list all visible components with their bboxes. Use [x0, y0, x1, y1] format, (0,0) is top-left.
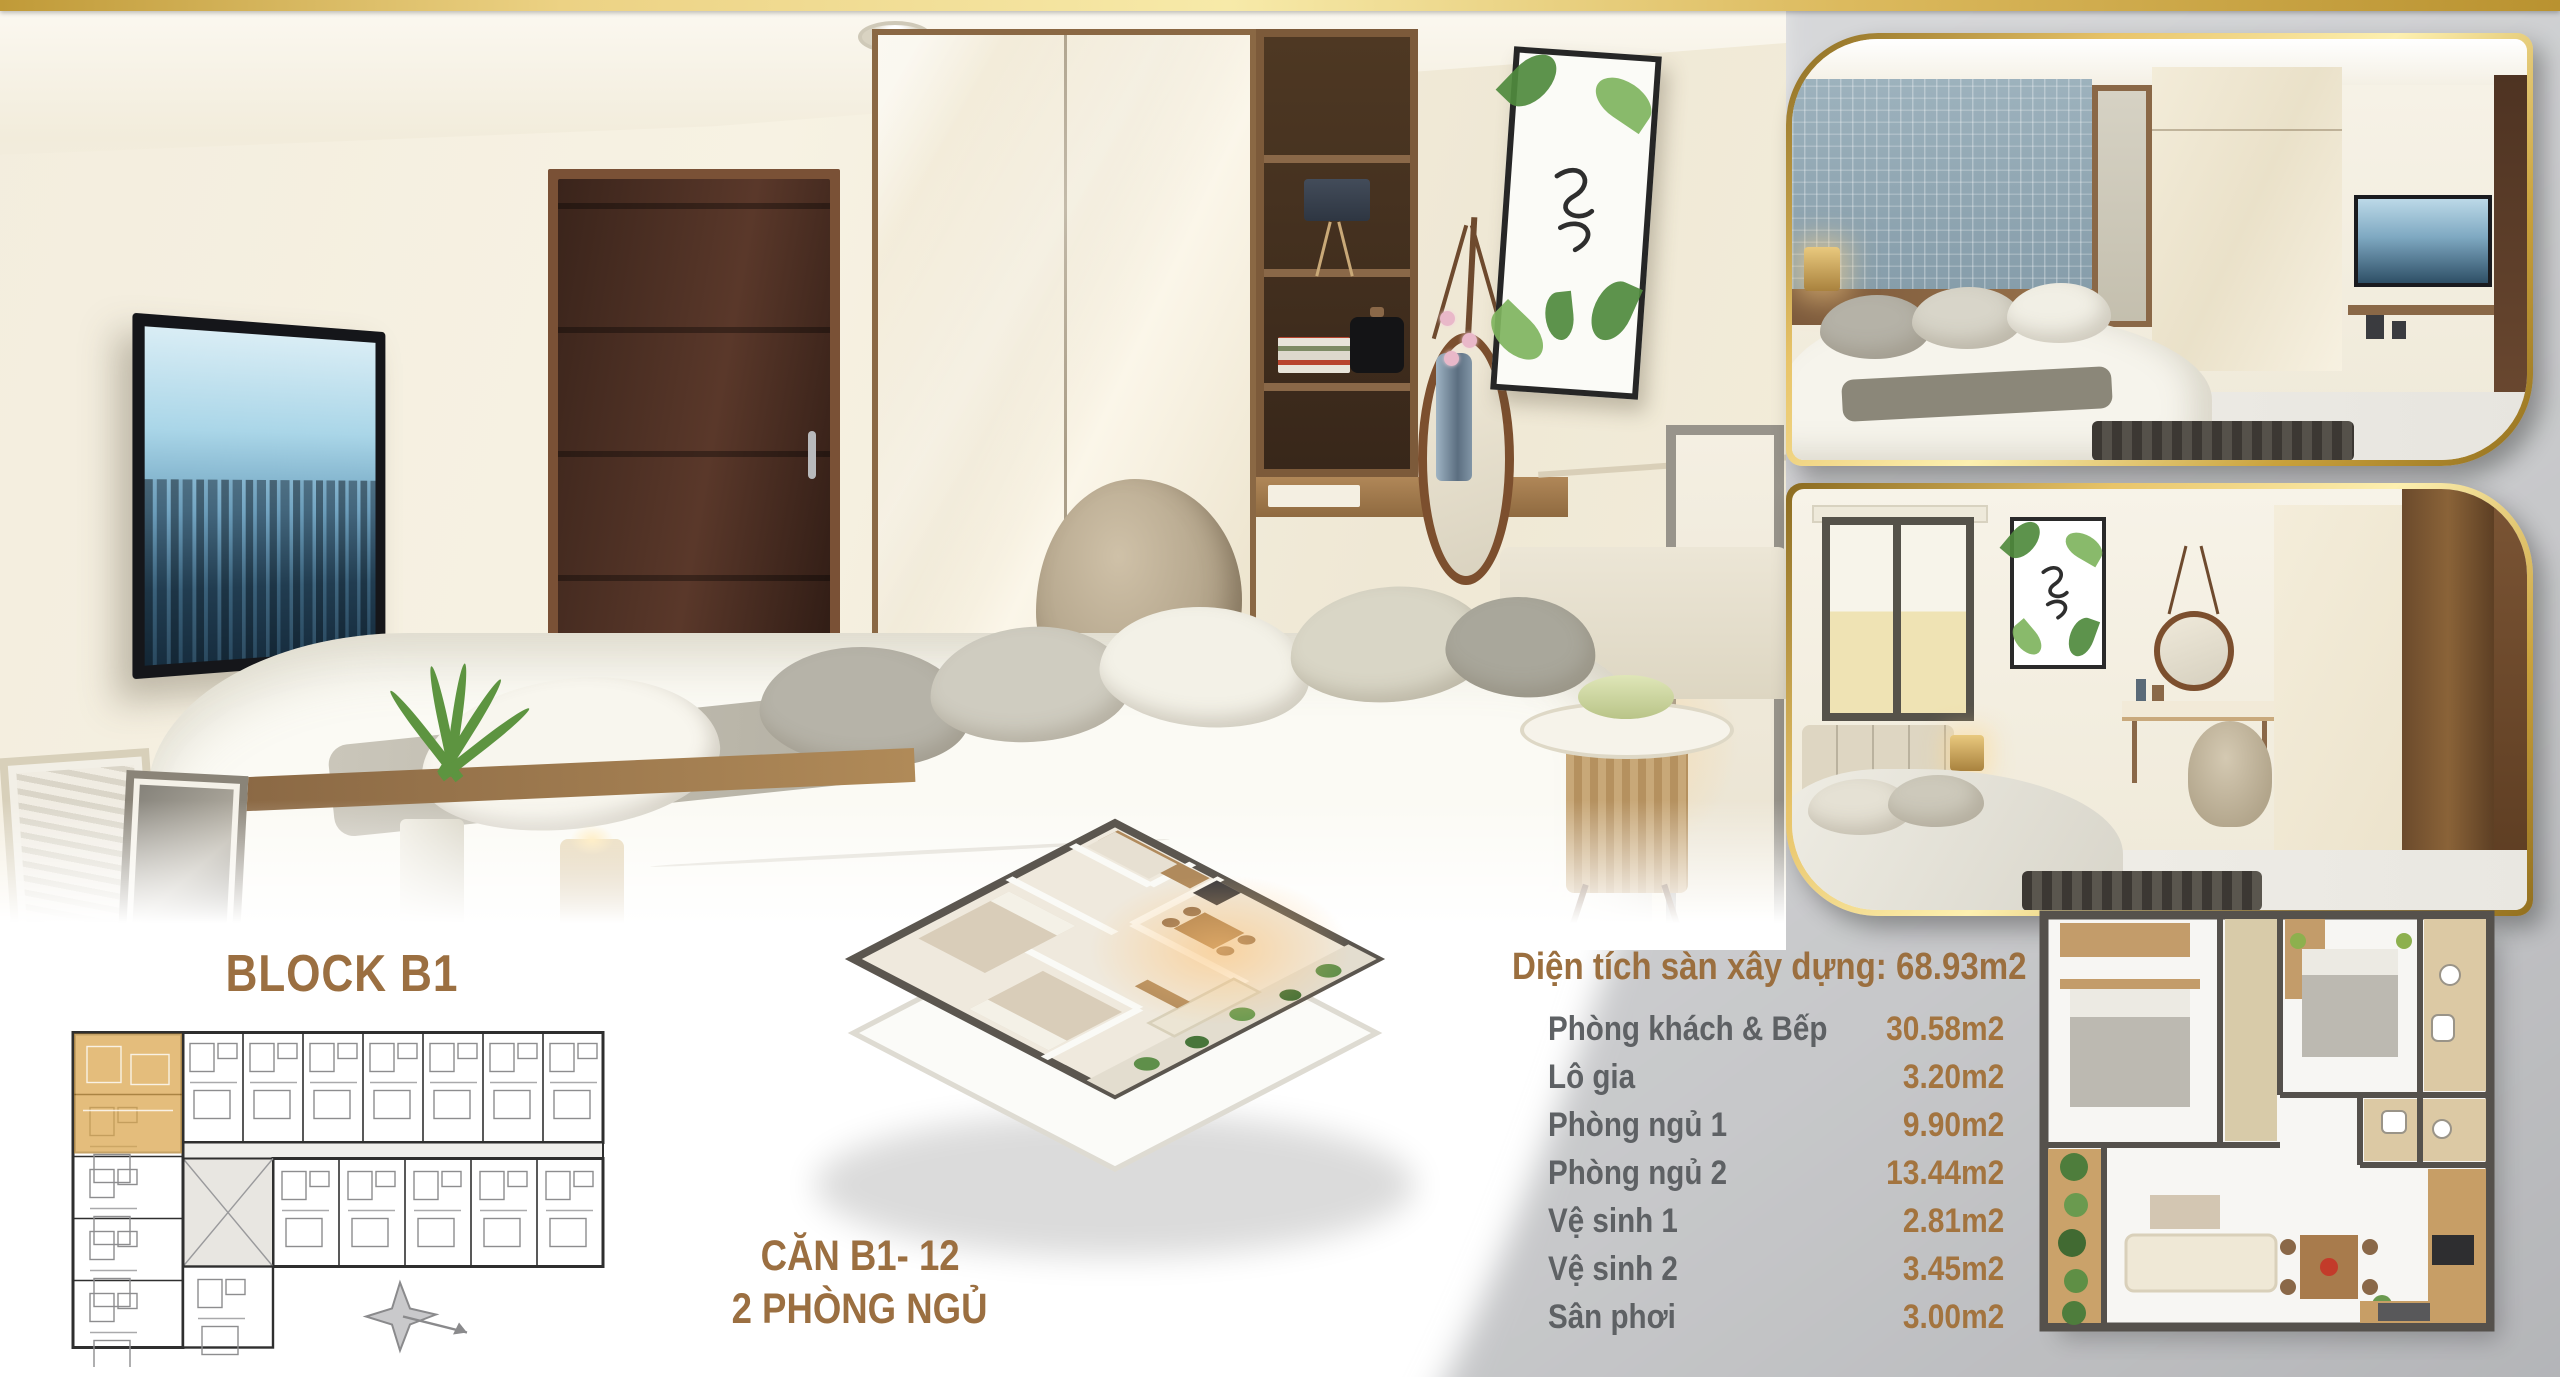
shelf-lamp	[1304, 179, 1370, 221]
door	[2494, 497, 2527, 883]
unit-caption: CĂN B1- 12 2 PHÒNG NGỦ	[620, 1230, 1100, 1336]
open-shelf-unit	[1256, 29, 1418, 477]
wall-tv	[2354, 195, 2492, 287]
unit-number: CĂN B1- 12	[620, 1230, 1100, 1283]
spec-row: Phòng ngủ 2 13.44m2	[1512, 1149, 2004, 1197]
unit-bedroom-count: 2 PHÒNG NGỦ	[620, 1283, 1100, 1336]
wall-tv	[132, 313, 385, 680]
table-bowl	[1578, 675, 1674, 719]
wardrobe	[2152, 67, 2342, 371]
block-floorplan-drawing	[55, 1012, 615, 1367]
tropical-leaf-artwork	[2010, 517, 2106, 669]
dresser-mirror	[2092, 85, 2152, 327]
property-brochure-poster: BLOCK B1	[0, 0, 2560, 1377]
gold-top-bar	[0, 0, 2560, 11]
tv-cityscape-screen	[145, 326, 376, 665]
spec-row: Phòng khách & Bếp 30.58m2	[1512, 1005, 2004, 1053]
wardrobe	[2274, 505, 2402, 869]
low-bench	[1256, 477, 1568, 517]
spec-row: Vệ sinh 2 3.45m2	[1512, 1245, 2004, 1293]
round-hanging-mirror	[2154, 611, 2234, 691]
inset-photo-bedroom-1	[1786, 33, 2533, 466]
bedside-lamp	[1950, 735, 1984, 771]
dressing-table	[2122, 701, 2274, 721]
entry-door	[548, 169, 840, 709]
top-down-unit-floorplan	[2030, 905, 2525, 1360]
specs-title: Diện tích sàn xây dựng: 68.93m2	[1512, 946, 2004, 989]
highlighted-unit-b1-12	[75, 1035, 181, 1153]
compass-rose-icon	[366, 1283, 467, 1351]
spec-row: Lô gia 3.20m2	[1512, 1053, 2004, 1101]
spec-row: Phòng ngủ 1 9.90m2	[1512, 1101, 2004, 1149]
dark-rug	[2092, 421, 2354, 460]
door-handle	[808, 431, 816, 479]
desk-chair	[2188, 721, 2272, 827]
area-specs-table: Diện tích sàn xây dựng: 68.93m2 Phòng kh…	[1512, 946, 2004, 1341]
black-pot	[1350, 317, 1404, 373]
script-text-decor	[1539, 147, 1617, 272]
tropical-leaf-artwork	[1490, 46, 1662, 399]
inset-photo-bedroom-2	[1786, 483, 2533, 916]
door	[2494, 75, 2527, 411]
wood-cabinet-column	[2402, 489, 2494, 910]
block-title: BLOCK B1	[92, 944, 592, 1004]
bedside-lamp	[1804, 247, 1840, 291]
spec-row: Vệ sinh 1 2.81m2	[1512, 1197, 2004, 1245]
flower-vase	[1436, 353, 1472, 481]
books	[1278, 337, 1350, 373]
spec-row: Sân phơi 3.00m2	[1512, 1293, 2004, 1341]
window	[1822, 517, 1974, 721]
